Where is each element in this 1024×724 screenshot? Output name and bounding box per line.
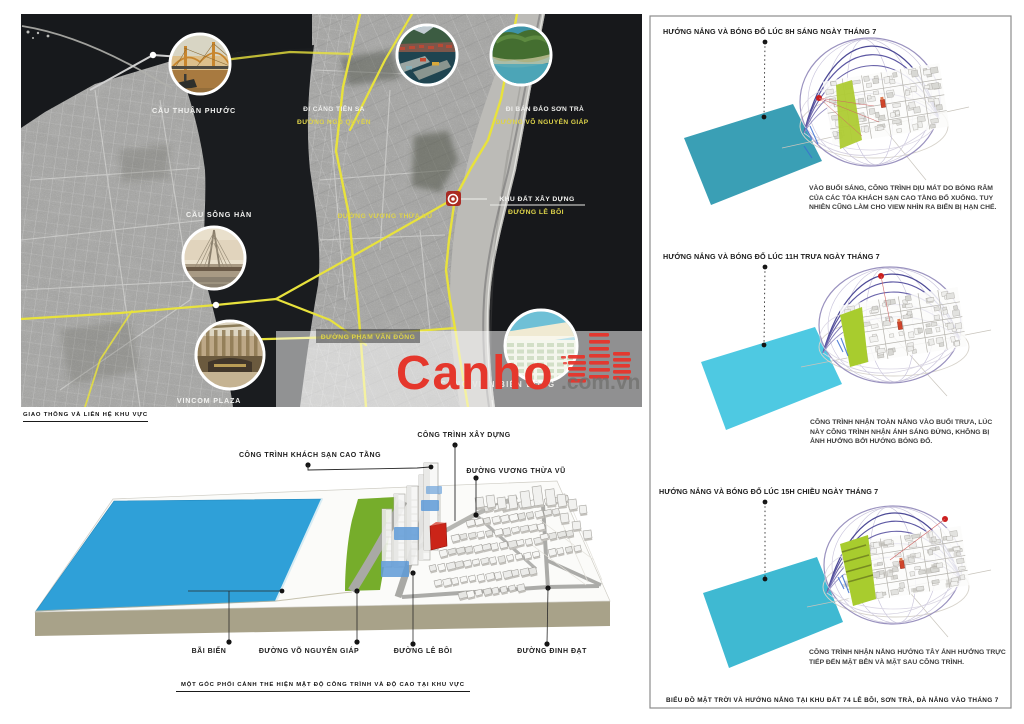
svg-text:CÔNG TRÌNH NHẬN TOÀN NẮNG VÀO: CÔNG TRÌNH NHẬN TOÀN NẮNG VÀO BUỔI TRƯA,… <box>810 417 992 426</box>
svg-text:NÀY CÔNG TRÌNH NHẬN ÁNH SÁNG Đ: NÀY CÔNG TRÌNH NHẬN ÁNH SÁNG ĐỨNG, KHÔNG… <box>810 427 989 436</box>
svg-text:HƯỚNG NẮNG VÀ BÓNG ĐỔ LÚC 11H: HƯỚNG NẮNG VÀ BÓNG ĐỔ LÚC 11H TRƯA NGÀY … <box>663 252 880 261</box>
svg-text:HƯỚNG NẮNG VÀ BÓNG ĐỔ LÚC 8H S: HƯỚNG NẮNG VÀ BÓNG ĐỔ LÚC 8H SÁNG NGÀY T… <box>663 27 876 36</box>
svg-text:CÔNG TRÌNH NHẬN NẮNG HƯỚNG TÂY: CÔNG TRÌNH NHẬN NẮNG HƯỚNG TÂY ẢNH HƯỞNG… <box>809 647 1006 656</box>
svg-text:HƯỚNG NẮNG VÀ BÓNG ĐỔ LÚC 15H: HƯỚNG NẮNG VÀ BÓNG ĐỔ LÚC 15H CHIỀU NGÀY… <box>659 486 878 496</box>
svg-text:VÀO BUỔI SÁNG, CÔNG TRÌNH DỊU: VÀO BUỔI SÁNG, CÔNG TRÌNH DỊU MÁT DO BÓN… <box>809 183 993 192</box>
svg-text:ẢNH HƯỞNG BỞI HƯỚNG BÓNG ĐỔ.: ẢNH HƯỞNG BỞI HƯỚNG BÓNG ĐỔ. <box>810 436 932 445</box>
